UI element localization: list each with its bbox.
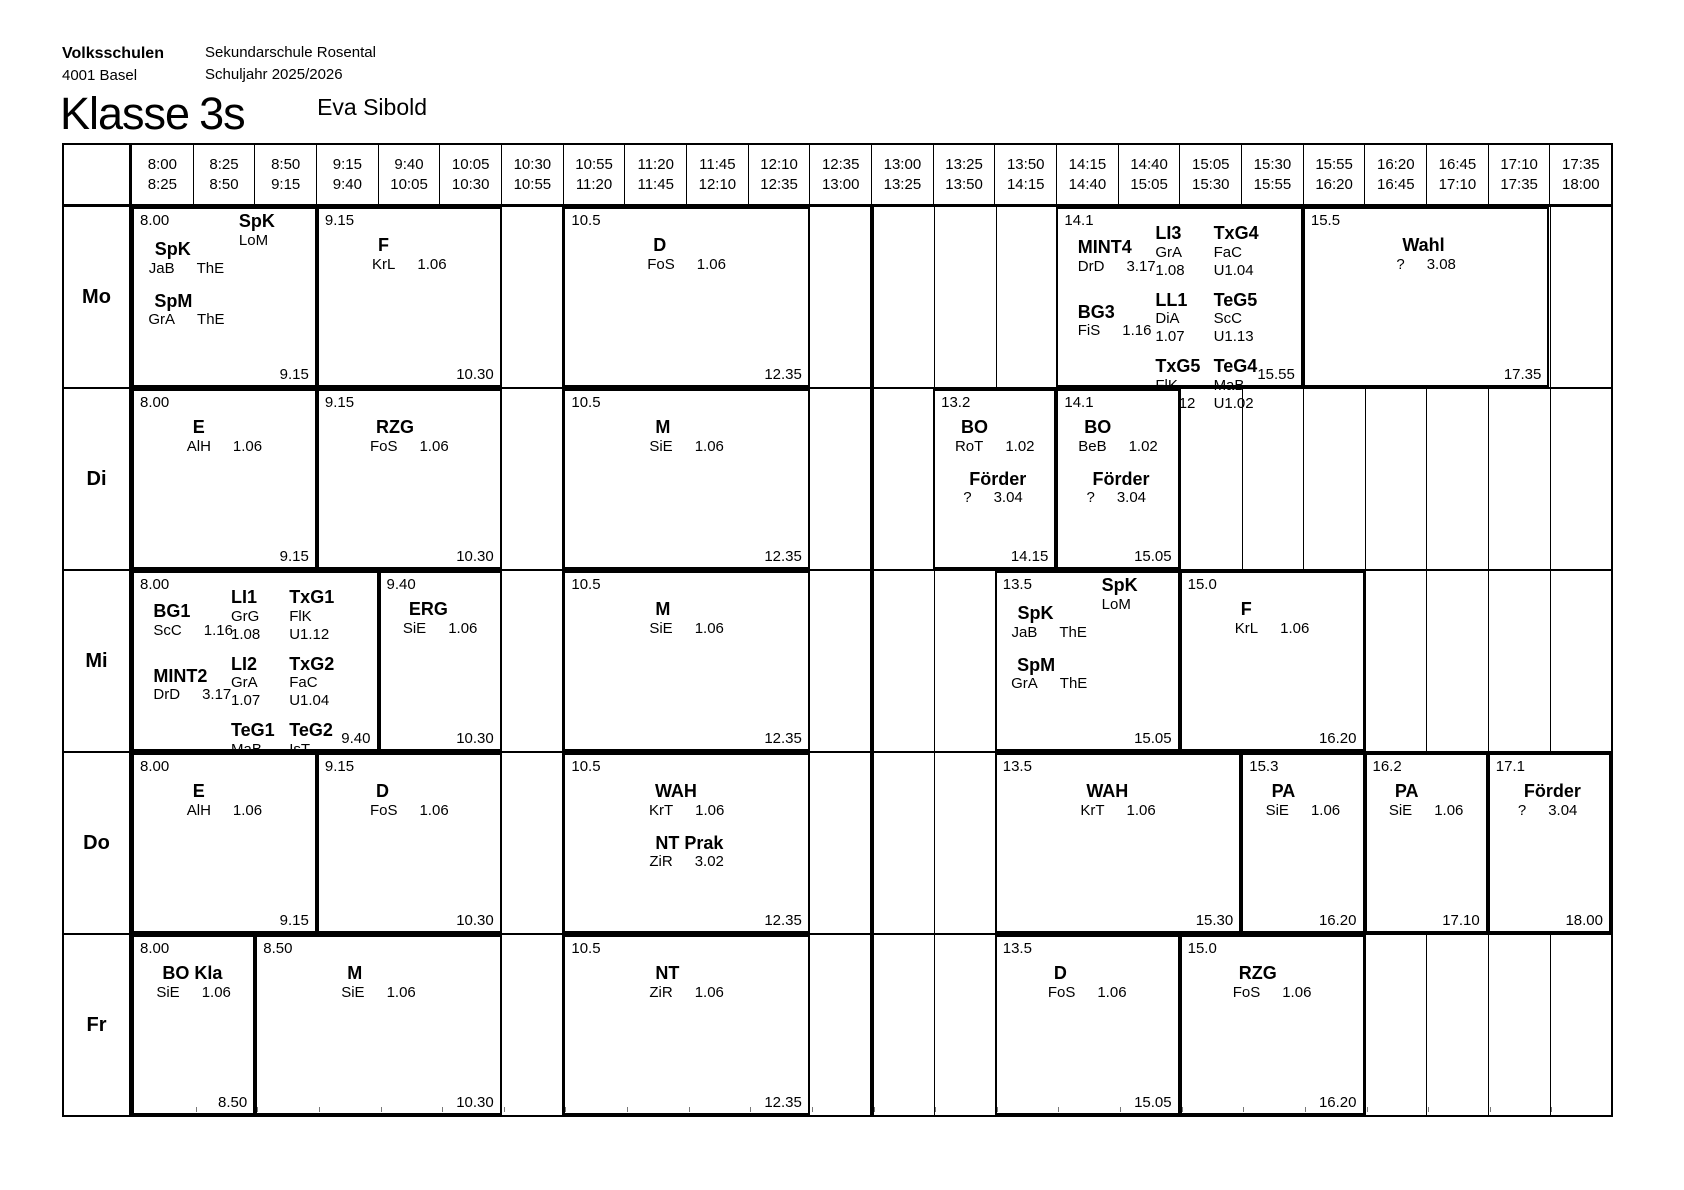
lesson-block: 8.009.15SpKJaBThESpMGrAThESpKLoM <box>132 207 317 387</box>
teacher-code: ZiR <box>649 853 672 870</box>
slot-end-time: 15:55 <box>1254 175 1292 195</box>
subject-title: M <box>341 963 416 984</box>
block-end-time: 18.00 <box>1565 912 1603 929</box>
time-col-header: 17:1017:35 <box>1489 145 1551 204</box>
teacher-code: GrA <box>1155 244 1184 262</box>
lesson-entry: ERGSiE1.06 <box>381 599 500 638</box>
subject-title: E <box>187 781 262 802</box>
tick <box>382 1107 444 1112</box>
lesson-entry-inner: WAHKrT1.06 <box>1080 781 1155 820</box>
school-name: Sekundarschule Rosental <box>205 42 376 64</box>
lesson-entry: DFoS1.06 <box>997 963 1178 1002</box>
slot-end-time: 11:20 <box>576 175 612 195</box>
room-code: 1.16 <box>204 622 233 639</box>
slot-end-time: 13:00 <box>822 175 860 195</box>
empty-slot <box>1551 571 1612 751</box>
subject-title: SpK <box>149 239 224 260</box>
teacher-code: FiS <box>1078 322 1101 339</box>
tick <box>443 1107 505 1112</box>
tick <box>628 1107 690 1112</box>
block-start-time: 10.5 <box>571 576 600 593</box>
day-row-do: Do8.009.15EAlH1.069.1510.30DFoS1.0610.51… <box>64 753 1611 935</box>
empty-slot <box>1427 389 1489 569</box>
teacher-code: ? <box>1086 489 1094 506</box>
entry-detail: FoS1.06 <box>370 802 449 820</box>
slot-end-time: 11:45 <box>637 175 673 195</box>
empty-slot <box>874 207 936 387</box>
entry-detail: ZiR3.02 <box>649 853 724 871</box>
subject-title: TeG4 <box>1214 356 1258 377</box>
entry-detail: KrL1.06 <box>372 256 447 274</box>
course-group-column: MINT4DrD3.17BG3FiS1.16 <box>1078 237 1156 366</box>
bottom-tick-marks <box>135 1107 1613 1112</box>
day-label: Do <box>64 753 132 933</box>
midday-divider-slot <box>809 753 874 933</box>
entry-detail: GrAThE <box>148 311 224 329</box>
lesson-entry: LI3GrA1.08 <box>1155 223 1200 280</box>
empty-slot <box>935 753 997 933</box>
midday-divider-slot <box>809 935 874 1115</box>
lesson-entry-inner: LI3GrA1.08 <box>1155 223 1184 280</box>
lesson-entry: MINT4DrD3.17 <box>1078 237 1156 276</box>
room-code: ThE <box>1060 675 1088 692</box>
subject-title: D <box>1048 963 1127 984</box>
slot-end-time: 13:25 <box>884 175 922 195</box>
room-code: U1.04 <box>289 692 334 710</box>
lesson-block: 15.016.20RZGFoS1.06 <box>1180 935 1365 1115</box>
slot-start-time: 8:00 <box>148 155 177 175</box>
empty-slot <box>997 207 1059 387</box>
teacher-code: GrA <box>1011 675 1038 692</box>
entry-detail: KrT1.06 <box>1080 802 1155 820</box>
block-start-time: 8.00 <box>140 394 169 411</box>
block-start-time: 15.0 <box>1188 940 1217 957</box>
entry-detail: FoS1.06 <box>647 256 726 274</box>
organization-block: Volksschulen 4001 Basel <box>62 42 164 87</box>
teacher-code: LoM <box>1102 596 1138 614</box>
day-row-body: 8.008.50BO KlaSiE1.068.5010.30MSiE1.0610… <box>132 935 1611 1115</box>
teacher-code: FlK <box>289 608 334 626</box>
block-start-time: 9.15 <box>325 758 354 775</box>
entry-detail: ?3.04 <box>1518 802 1581 820</box>
teacher-code: ScC <box>153 622 181 639</box>
empty-slot <box>501 389 563 569</box>
room-code: 1.07 <box>231 692 260 710</box>
block-entries: Förder?3.04 <box>1490 781 1609 833</box>
lesson-entry: BO KlaSiE1.06 <box>134 963 253 1002</box>
slot-end-time: 8:50 <box>209 175 238 195</box>
day-row-mi: Mi8.009.40BG1ScC1.16MINT2DrD3.17LI1GrG1.… <box>64 571 1611 753</box>
teacher-code: AlH <box>187 802 211 819</box>
block-start-time: 13.5 <box>1003 576 1032 593</box>
lesson-entry: DFoS1.06 <box>565 235 808 274</box>
entry-detail: FiS1.16 <box>1078 322 1152 340</box>
room-code: 1.06 <box>233 438 262 455</box>
block-entries: BORoT1.02Förder?3.04 <box>935 417 1054 520</box>
slot-start-time: 15:55 <box>1315 155 1353 175</box>
teacher-code: DrD <box>1078 258 1105 275</box>
tick <box>1244 1107 1306 1112</box>
tick <box>690 1107 752 1112</box>
block-start-time: 8.00 <box>140 758 169 775</box>
subject-title: F <box>372 235 447 256</box>
slot-end-time: 9:15 <box>271 175 300 195</box>
block-entries: FKrL1.06 <box>1182 599 1363 651</box>
lesson-entry-inner: RZGFoS1.06 <box>370 417 449 456</box>
lesson-entry-inner: TxG4FaCU1.04 <box>1214 223 1259 280</box>
slot-end-time: 12:35 <box>760 175 798 195</box>
empty-slot <box>501 207 563 387</box>
room-code: 1.16 <box>1122 322 1151 339</box>
lesson-entry: TeG5ScCU1.13 <box>1214 290 1259 347</box>
block-start-time: 8.00 <box>140 576 169 593</box>
entry-detail: JaBThE <box>1012 624 1087 642</box>
slot-end-time: 10:55 <box>514 175 552 195</box>
time-col-header: 15:0515:30 <box>1180 145 1242 204</box>
subject-title: E <box>187 417 262 438</box>
tick <box>1429 1107 1491 1112</box>
teacher-code: SiE <box>1389 802 1412 819</box>
block-end-time: 9.40 <box>341 730 370 747</box>
block-end-time: 10.30 <box>456 912 494 929</box>
block-entries: EAlH1.06 <box>134 781 315 833</box>
slot-end-time: 10:30 <box>452 175 490 195</box>
slot-start-time: 9:40 <box>394 155 423 175</box>
lesson-block: 14.115.05BOBeB1.02Förder?3.04 <box>1056 389 1179 569</box>
page-title: Klasse3s <box>60 88 245 139</box>
timetable-sheet: Volksschulen 4001 Basel Sekundarschule R… <box>0 0 1684 1190</box>
block-entries: MSiE1.06 <box>565 599 808 651</box>
lesson-entry: TxG2FaCU1.04 <box>289 654 334 711</box>
empty-slot <box>1243 389 1305 569</box>
lesson-entry: FKrL1.06 <box>319 235 500 274</box>
subject-title: D <box>370 781 449 802</box>
lesson-entry: SpKJaBThE <box>997 603 1102 642</box>
tick <box>1306 1107 1368 1112</box>
slot-end-time: 12:10 <box>699 175 737 195</box>
entry-detail: ?3.08 <box>1396 256 1456 274</box>
slot-start-time: 11:20 <box>637 155 673 175</box>
slot-start-time: 14:15 <box>1069 155 1107 175</box>
corner-course: SpKLoM <box>239 211 275 250</box>
tick <box>1059 1107 1121 1112</box>
time-col-header: 16:4517:10 <box>1427 145 1489 204</box>
block-end-time: 17.35 <box>1504 366 1542 383</box>
lesson-entry-inner: EAlH1.06 <box>187 417 262 456</box>
block-start-time: 8.00 <box>140 212 169 229</box>
lesson-entry: BG3FiS1.16 <box>1078 302 1156 341</box>
time-col-header: 11:2011:45 <box>625 145 687 204</box>
room-code: 1.06 <box>419 438 448 455</box>
lesson-entry: BOBeB1.02 <box>1058 417 1177 456</box>
subject-title: D <box>647 235 726 256</box>
empty-slot <box>1551 207 1612 387</box>
lesson-entry-inner: MINT2DrD3.17 <box>153 666 231 705</box>
subject-title: TxG1 <box>289 587 334 608</box>
tick <box>751 1107 813 1112</box>
block-end-time: 12.35 <box>764 548 802 565</box>
title-row: Klasse3s Eva Sibold <box>60 88 427 140</box>
block-entries: DFoS1.06 <box>565 235 808 287</box>
day-row-body: 8.009.15EAlH1.069.1510.30DFoS1.0610.512.… <box>132 753 1611 933</box>
time-col-header: 10:0510:30 <box>440 145 502 204</box>
empty-slot <box>501 753 563 933</box>
slot-start-time: 10:55 <box>575 155 613 175</box>
slot-start-time: 10:30 <box>514 155 552 175</box>
subject-title: LI1 <box>231 587 260 608</box>
entry-detail: SiE1.06 <box>649 438 724 456</box>
subject-title: TxG2 <box>289 654 334 675</box>
block-entries: NTZiR1.06 <box>565 963 808 1015</box>
slot-end-time: 9:40 <box>333 175 362 195</box>
room-code: 1.08 <box>1155 262 1184 280</box>
lesson-entry: PASiE1.06 <box>1367 781 1486 820</box>
block-end-time: 15.05 <box>1134 548 1172 565</box>
teacher-code: KrT <box>1080 802 1104 819</box>
block-end-time: 12.35 <box>764 912 802 929</box>
lesson-entry-inner: MSiE1.06 <box>649 417 724 456</box>
slot-end-time: 10:05 <box>390 175 428 195</box>
empty-slot <box>874 389 936 569</box>
tick <box>505 1107 567 1112</box>
block-entries: EAlH1.06 <box>134 417 315 469</box>
block-end-time: 16.20 <box>1319 912 1357 929</box>
block-entries: RZGFoS1.06 <box>319 417 500 469</box>
teacher-code: RoT <box>955 438 983 455</box>
time-col-header: 14:4015:05 <box>1119 145 1181 204</box>
entry-detail: FoS1.06 <box>370 438 449 456</box>
lesson-entry: BG1ScC1.16 <box>153 601 233 640</box>
block-entries: ERGSiE1.06 <box>381 599 500 651</box>
subject-title: PA <box>1266 781 1341 802</box>
lesson-entry-inner: MINT4DrD3.17 <box>1078 237 1156 276</box>
subject-title: Förder <box>1518 781 1581 802</box>
subject-title: BO <box>1078 417 1158 438</box>
block-end-time: 9.15 <box>280 548 309 565</box>
slot-end-time: 14:15 <box>1007 175 1045 195</box>
entry-detail: SiE1.06 <box>1389 802 1464 820</box>
teacher-code: GrA <box>231 674 260 692</box>
subject-title: NT Prak <box>649 833 724 854</box>
tick <box>320 1107 382 1112</box>
lesson-block: 9.1510.30RZGFoS1.06 <box>317 389 502 569</box>
time-col-header: 14:1514:40 <box>1057 145 1119 204</box>
subject-title: M <box>649 599 724 620</box>
time-col-header: 13:5014:15 <box>995 145 1057 204</box>
lesson-entry-inner: MSiE1.06 <box>649 599 724 638</box>
room-code: 3.17 <box>202 686 231 703</box>
block-start-time: 16.2 <box>1373 758 1402 775</box>
lesson-block: 8.5010.30MSiE1.06 <box>255 935 502 1115</box>
entry-detail: ZiR1.06 <box>649 984 724 1002</box>
day-row-di: Di8.009.15EAlH1.069.1510.30RZGFoS1.0610.… <box>64 389 1611 571</box>
lesson-entry-inner: Förder?3.04 <box>1518 781 1581 820</box>
block-end-time: 10.30 <box>456 548 494 565</box>
room-code: ThE <box>1059 624 1087 641</box>
time-header-row: 8:008:258:258:508:509:159:159:409:4010:0… <box>64 145 1611 207</box>
midday-divider-slot <box>809 571 874 751</box>
lesson-entry: BORoT1.02 <box>935 417 1054 456</box>
lesson-entry: MSiE1.06 <box>257 963 500 1002</box>
lesson-block: 17.118.00Förder?3.04 <box>1488 753 1611 933</box>
block-entries: BO KlaSiE1.06 <box>134 963 253 1015</box>
time-col-header: 15:5516:20 <box>1304 145 1366 204</box>
teacher-code: FoS <box>370 802 398 819</box>
lesson-entry-inner: BO KlaSiE1.06 <box>156 963 231 1002</box>
block-end-time: 12.35 <box>764 366 802 383</box>
entry-detail: ?3.04 <box>1086 489 1149 507</box>
block-end-time: 9.15 <box>280 366 309 383</box>
lesson-block: 10.512.35NTZiR1.06 <box>563 935 810 1115</box>
lesson-entry-inner: SpMGrAThE <box>148 291 224 330</box>
time-col-header: 8:008:25 <box>132 145 194 204</box>
room-code: 1.02 <box>1005 438 1034 455</box>
empty-slot <box>1489 389 1551 569</box>
room-code: 1.06 <box>1126 802 1155 819</box>
empty-slot <box>1551 935 1612 1115</box>
time-col-header: 10:5511:20 <box>564 145 626 204</box>
lesson-entry: RZGFoS1.06 <box>319 417 500 456</box>
lesson-entry-inner: BOBeB1.02 <box>1078 417 1158 456</box>
entry-detail: AlH1.06 <box>187 438 262 456</box>
lesson-entry-inner: Förder?3.04 <box>1086 469 1149 508</box>
block-start-time: 15.0 <box>1188 576 1217 593</box>
teacher-code: LoM <box>239 232 275 250</box>
lesson-entry: RZGFoS1.06 <box>1182 963 1363 1002</box>
lesson-entry-inner: BORoT1.02 <box>955 417 1035 456</box>
entry-detail: ?3.04 <box>963 489 1026 507</box>
lesson-entry-inner: Förder?3.04 <box>963 469 1026 508</box>
lesson-entry-inner: BG3FiS1.16 <box>1078 302 1152 341</box>
slot-end-time: 16:45 <box>1377 175 1415 195</box>
teacher-code: SiE <box>403 620 426 637</box>
tick <box>1552 1107 1613 1112</box>
lesson-entry-inner: NTZiR1.06 <box>649 963 724 1002</box>
teacher-code: ? <box>963 489 971 506</box>
block-start-time: 13.5 <box>1003 940 1032 957</box>
entry-detail: FoS1.06 <box>1233 984 1312 1002</box>
room-code: 1.06 <box>417 256 446 273</box>
lesson-entry: NT PrakZiR3.02 <box>565 833 808 872</box>
block-end-time: 17.10 <box>1442 912 1480 929</box>
day-row-body: 8.009.15SpKJaBThESpMGrAThESpKLoM9.1510.3… <box>132 207 1611 387</box>
teacher-code: JaB <box>149 260 175 277</box>
entry-detail: RoT1.02 <box>955 438 1035 456</box>
midday-divider-slot <box>809 389 874 569</box>
empty-slot <box>1551 389 1612 569</box>
empty-slot <box>1366 935 1428 1115</box>
room-code: 1.06 <box>695 984 724 1001</box>
lesson-entry: FKrL1.06 <box>1182 599 1363 638</box>
lesson-entry: Förder?3.04 <box>935 469 1054 508</box>
room-code: 3.04 <box>994 489 1023 506</box>
subject-title: ERG <box>403 599 478 620</box>
time-col-header: 13:2513:50 <box>934 145 996 204</box>
teacher-code: KrT <box>649 802 673 819</box>
slot-start-time: 16:20 <box>1377 155 1415 175</box>
slot-start-time: 16:45 <box>1439 155 1477 175</box>
room-code: 1.06 <box>419 802 448 819</box>
lesson-entry-inner: NT PrakZiR3.02 <box>649 833 724 872</box>
class-label: Klasse <box>60 88 189 139</box>
slot-start-time: 13:00 <box>884 155 922 175</box>
lesson-entry: TxG1FlKU1.12 <box>289 587 334 644</box>
slot-start-time: 15:05 <box>1192 155 1230 175</box>
lesson-entry: LI2GrA1.07 <box>231 654 275 711</box>
room-code: 3.17 <box>1126 258 1155 275</box>
room-code: 1.06 <box>202 984 231 1001</box>
corner-course: SpKLoM <box>1102 575 1138 614</box>
slot-end-time: 17:10 <box>1439 175 1477 195</box>
lesson-entry: Förder?3.04 <box>1058 469 1177 508</box>
entry-detail: SiE1.06 <box>649 620 724 638</box>
day-label: Fr <box>64 935 132 1115</box>
lesson-entry: PASiE1.06 <box>1243 781 1362 820</box>
block-entries: SpKJaBThESpMGrAThE <box>997 603 1102 706</box>
block-entries: WAHKrT1.06 <box>997 781 1240 833</box>
block-entries: PASiE1.06 <box>1243 781 1362 833</box>
slot-end-time: 15:05 <box>1130 175 1168 195</box>
subject-title: Förder <box>963 469 1026 490</box>
time-col-header: 12:1012:35 <box>749 145 811 204</box>
lesson-entry-inner: Wahl?3.08 <box>1396 235 1456 274</box>
day-row-body: 8.009.40BG1ScC1.16MINT2DrD3.17LI1GrG1.08… <box>132 571 1611 751</box>
block-end-time: 9.15 <box>280 912 309 929</box>
block-start-time: 10.5 <box>571 758 600 775</box>
lesson-block: 14.115.55MINT4DrD3.17BG3FiS1.16LI3GrA1.0… <box>1056 207 1303 387</box>
subject-title: M <box>649 417 724 438</box>
subject-title: SpK <box>239 211 275 232</box>
lesson-entry-inner: TxG2FaCU1.04 <box>289 654 334 711</box>
subject-title: MINT4 <box>1078 237 1156 258</box>
block-entries: BOBeB1.02Förder?3.04 <box>1058 417 1177 520</box>
block-start-time: 9.15 <box>325 394 354 411</box>
lesson-entry-inner: WAHKrT1.06 <box>649 781 724 820</box>
room-code: U1.04 <box>1214 262 1259 280</box>
subject-title: TeG5 <box>1214 290 1258 311</box>
time-col-header: 16:2016:45 <box>1365 145 1427 204</box>
block-end-time: 10.30 <box>456 730 494 747</box>
empty-slot <box>1366 389 1428 569</box>
room-code: ThE <box>197 260 225 277</box>
lesson-entry-inner: ERGSiE1.06 <box>403 599 478 638</box>
room-code: U1.12 <box>289 626 334 644</box>
block-entries: MSiE1.06 <box>257 963 500 1015</box>
subject-title: Wahl <box>1396 235 1456 256</box>
room-code: 1.02 <box>1129 438 1158 455</box>
subject-title: PA <box>1389 781 1464 802</box>
slot-start-time: 9:15 <box>333 155 362 175</box>
lesson-entry: SpKJaBThE <box>134 239 239 278</box>
block-entries: MSiE1.06 <box>565 417 808 469</box>
lesson-entry-inner: LL1DiA1.07 <box>1155 290 1187 347</box>
subject-title: BG1 <box>153 601 233 622</box>
subject-title: LI3 <box>1155 223 1184 244</box>
slot-end-time: 17:35 <box>1500 175 1538 195</box>
lesson-entry-inner: TeG5ScCU1.13 <box>1214 290 1258 347</box>
empty-slot <box>935 571 997 751</box>
teacher-code: KrL <box>372 256 395 273</box>
block-entries: PASiE1.06 <box>1367 781 1486 833</box>
subject-title: NT <box>649 963 724 984</box>
teacher-code: DiA <box>1155 310 1187 328</box>
room-code: 1.06 <box>695 802 724 819</box>
empty-slot <box>935 935 997 1115</box>
tick <box>936 1107 998 1112</box>
lesson-entry-inner: PASiE1.06 <box>1266 781 1341 820</box>
teacher-code: FoS <box>647 256 675 273</box>
lesson-block: 16.217.10PASiE1.06 <box>1365 753 1488 933</box>
